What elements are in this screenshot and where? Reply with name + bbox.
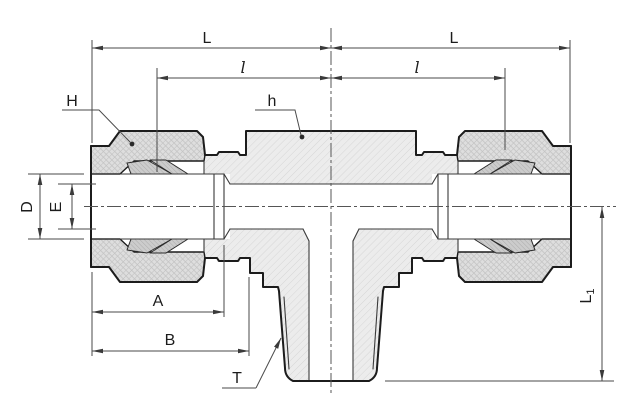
dim-label-A: A [153, 293, 164, 310]
tee-fitting-drawing: L L l l H h D E A B T L1 [0, 0, 629, 412]
dim-label-l-right: l [414, 58, 419, 77]
dim-label-L1: L1 [578, 288, 597, 303]
dim-label-l-left: l [240, 58, 245, 77]
dim-label-h: h [268, 93, 277, 110]
leader-T [222, 338, 281, 388]
dim-label-L-left: L [203, 30, 212, 47]
technical-drawing-page: L L l l H h D E A B T L1 [0, 0, 629, 412]
dim-label-L-right: L [450, 30, 459, 47]
dim-label-E: E [48, 202, 65, 213]
dim-label-T: T [232, 370, 242, 387]
dim-label-B: B [165, 332, 176, 349]
dim-label-H: H [66, 93, 78, 110]
dim-label-D: D [19, 201, 36, 213]
